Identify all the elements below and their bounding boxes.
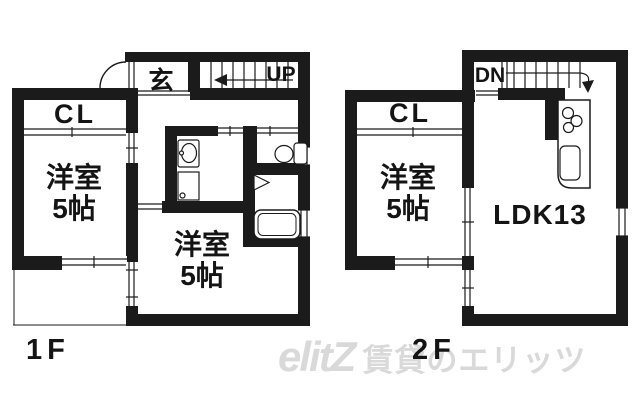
washbasin-icon	[178, 140, 199, 167]
door	[126, 133, 138, 163]
stairs-up-label: UP	[262, 63, 300, 87]
room-label-line: 5帖	[22, 193, 126, 224]
closet-label-1f: CL	[28, 99, 122, 130]
door	[257, 126, 298, 136]
fixtures-1f	[178, 140, 307, 239]
stairs-down-label: DN	[474, 64, 506, 88]
toilet-icon	[275, 143, 307, 164]
floor-label-2f: 2F	[412, 334, 482, 367]
kitchen-2f	[558, 100, 590, 188]
room-label-line: 洋室	[22, 162, 126, 193]
watermark-logo: elitZ	[278, 333, 354, 381]
room-label-line: 洋室	[146, 229, 258, 260]
door-swing-arc-icon	[100, 62, 126, 88]
room-label-line: 5帖	[352, 193, 464, 224]
door	[138, 201, 162, 213]
room-label-line: 洋室	[352, 162, 464, 193]
porch-outline	[13, 270, 138, 325]
closet-label-2f: CL	[360, 98, 460, 129]
bath-door-icon	[254, 175, 269, 190]
floorplan-canvas: elitZ 賃貸のエリッツ	[0, 0, 640, 416]
window	[62, 256, 127, 270]
bathtub-icon	[254, 210, 300, 239]
window	[395, 256, 462, 270]
ldk-label: LDK13	[478, 199, 602, 231]
bedroom-left-label: 洋室 5帖	[22, 162, 126, 224]
entrance-label: 玄	[136, 61, 186, 97]
bedroom-bottom-label: 洋室 5帖	[146, 229, 258, 291]
window	[462, 270, 474, 306]
door	[218, 126, 243, 136]
window	[616, 208, 628, 236]
washing-machine-icon	[178, 172, 199, 200]
room-label-line: 5帖	[146, 260, 258, 291]
window	[126, 262, 138, 306]
floor-label-1f: 1F	[26, 334, 96, 367]
bedroom-2f-label: 洋室 5帖	[352, 162, 464, 224]
